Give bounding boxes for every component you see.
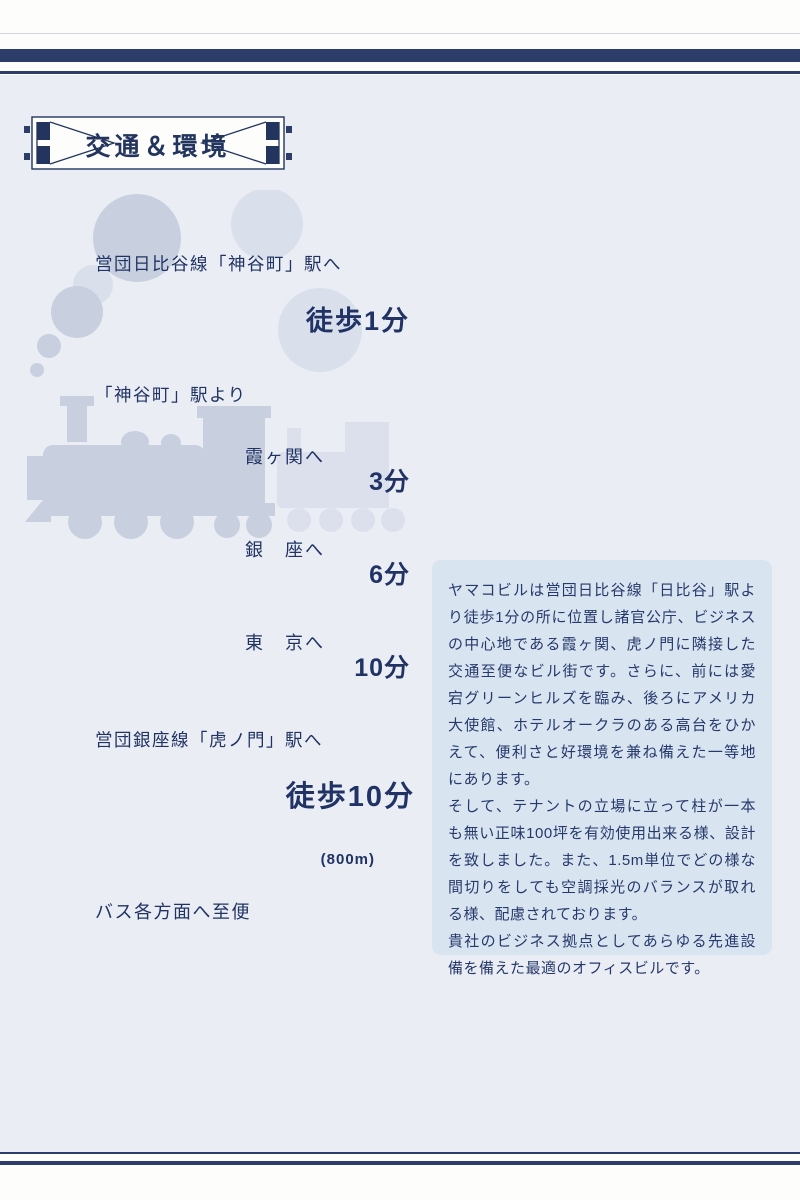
description-paragraph: そして、テナントの立場に立って柱が一本も無い正味100坪を有効使用出来る様、設計… — [448, 793, 756, 928]
footer-rule — [0, 1152, 800, 1154]
steam-smoke-circles — [30, 190, 362, 377]
destination-ginza: 銀 座へ — [90, 536, 325, 562]
description-panel: ヤマコビルは営団日比谷線「日比谷」駅より徒歩1分の所に位置し諸官公庁、ビジネスの… — [432, 560, 772, 955]
time-ginza: 6分 — [330, 555, 410, 591]
footer-rule — [0, 1161, 800, 1165]
brochure-page: 交通＆環境 営団日比谷線「神谷町」駅へ 徒歩1分 「神谷町」駅より 霞ヶ関へ 3… — [0, 0, 800, 1200]
destination-kasumigaseki: 霞ヶ関へ — [90, 443, 325, 469]
walk-time-toranomon: 徒歩10分 — [170, 773, 415, 815]
from-station-label: 「神谷町」駅より — [95, 382, 800, 407]
header-rule — [0, 71, 800, 74]
description-paragraph: ヤマコビルは営団日比谷線「日比谷」駅より徒歩1分の所に位置し諸官公庁、ビジネスの… — [448, 577, 756, 793]
section-title-transport: 交通＆環境 — [24, 114, 292, 172]
destination-tokyo: 東 京へ — [90, 629, 325, 655]
top-hairline — [0, 33, 800, 34]
section-title-text: 交通＆環境 — [24, 114, 292, 174]
time-kasumigaseki: 3分 — [330, 462, 410, 498]
walk-time-kamiyacho: 徒歩1分 — [180, 299, 410, 338]
time-tokyo: 10分 — [330, 648, 410, 684]
walk-distance: (800m) — [170, 851, 375, 868]
header-band — [0, 49, 800, 62]
access-line-hibiya: 営団日比谷線「神谷町」駅へ — [95, 251, 800, 276]
description-paragraph: 貴社のビジネス拠点としてあらゆる先進設備を備えた最適のオフィスビルです。 — [448, 928, 756, 982]
